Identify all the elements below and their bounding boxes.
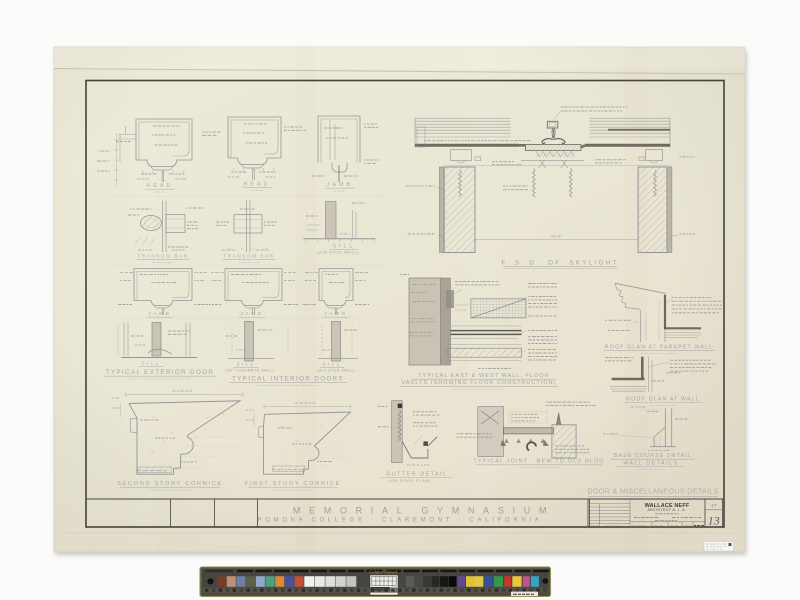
svg-text:BASE COURSE DETAIL: BASE COURSE DETAIL [614, 453, 692, 459]
svg-text:(2×6 STUD WALL): (2×6 STUD WALL) [317, 250, 359, 255]
svg-text:FIRST STORY CORNICE: FIRST STORY CORNICE [245, 481, 341, 487]
svg-text:SECOND STORY CORNICE: SECOND STORY CORNICE [117, 481, 223, 487]
svg-text:POMONA COLLEGE · CLAREMONT · C: POMONA COLLEGE · CLAREMONT · CALIFORNIA [258, 517, 543, 523]
svg-text:DOOR & MISCELLANEOUS DETAILS: DOOR & MISCELLANEOUS DETAILS [587, 487, 718, 496]
svg-text:-17-: -17- [710, 503, 718, 508]
svg-text:JAMB: JAMB [148, 311, 171, 317]
svg-text:GUTTER DETAIL: GUTTER DETAIL [386, 471, 447, 477]
svg-text:F. S. D. OF SKYLIGHT: F. S. D. OF SKYLIGHT [502, 260, 619, 267]
svg-text:TRANSOM BAR: TRANSOM BAR [223, 254, 274, 259]
svg-text:(16″ CONCRETE WALL): (16″ CONCRETE WALL) [225, 369, 275, 373]
svg-text:JAMB: JAMB [327, 182, 354, 188]
svg-text:(3×4 STUD WALL): (3×4 STUD WALL) [317, 369, 355, 373]
svg-text:TRANSOM BAR: TRANSOM BAR [137, 254, 188, 259]
svg-text:ROOF GLAN AT PARAPET WALL: ROOF GLAN AT PARAPET WALL [605, 345, 713, 351]
svg-text:13: 13 [708, 514, 720, 528]
svg-text:TYPICAL INTERIOR DOORS: TYPICAL INTERIOR DOORS [232, 376, 344, 383]
svg-text:SILL: SILL [141, 361, 160, 366]
svg-text:WALL DETAILS: WALL DETAILS [623, 460, 679, 466]
svg-text:Golden Thread: Golden Thread [369, 570, 397, 575]
svg-text:SILL: SILL [322, 362, 341, 367]
svg-text:TYPICAL EAST & WEST WALL, FLOO: TYPICAL EAST & WEST WALL, FLOOR [418, 373, 549, 379]
svg-text:JAMB: JAMB [240, 311, 263, 317]
svg-text:(ON ROOF PLAN): (ON ROOF PLAN) [389, 479, 431, 483]
svg-text:TYPICAL JOINT · NEW TO OLD BLD: TYPICAL JOINT · NEW TO OLD BLDG [473, 459, 604, 465]
svg-text:ROOF GLAN AT WALL: ROOF GLAN AT WALL [626, 396, 700, 402]
svg-text:JAMB: JAMB [324, 311, 347, 317]
svg-text:HEAD: HEAD [146, 183, 173, 189]
svg-text:VAULTS (SHOWING FLOOR CONSTRUC: VAULTS (SHOWING FLOOR CONSTRUCTION) [401, 380, 556, 386]
svg-text:MEMORIAL GYMNASIUM: MEMORIAL GYMNASIUM [293, 506, 555, 516]
svg-text:SILL: SILL [236, 362, 255, 367]
svg-text:16′-0″: 16′-0″ [551, 234, 562, 239]
svg-text:TYPICAL EXTERIOR DOOR: TYPICAL EXTERIOR DOOR [106, 369, 215, 376]
svg-text:ARCHITECT A. I. A.: ARCHITECT A. I. A. [647, 508, 686, 512]
svg-text:HEAD: HEAD [243, 182, 270, 188]
